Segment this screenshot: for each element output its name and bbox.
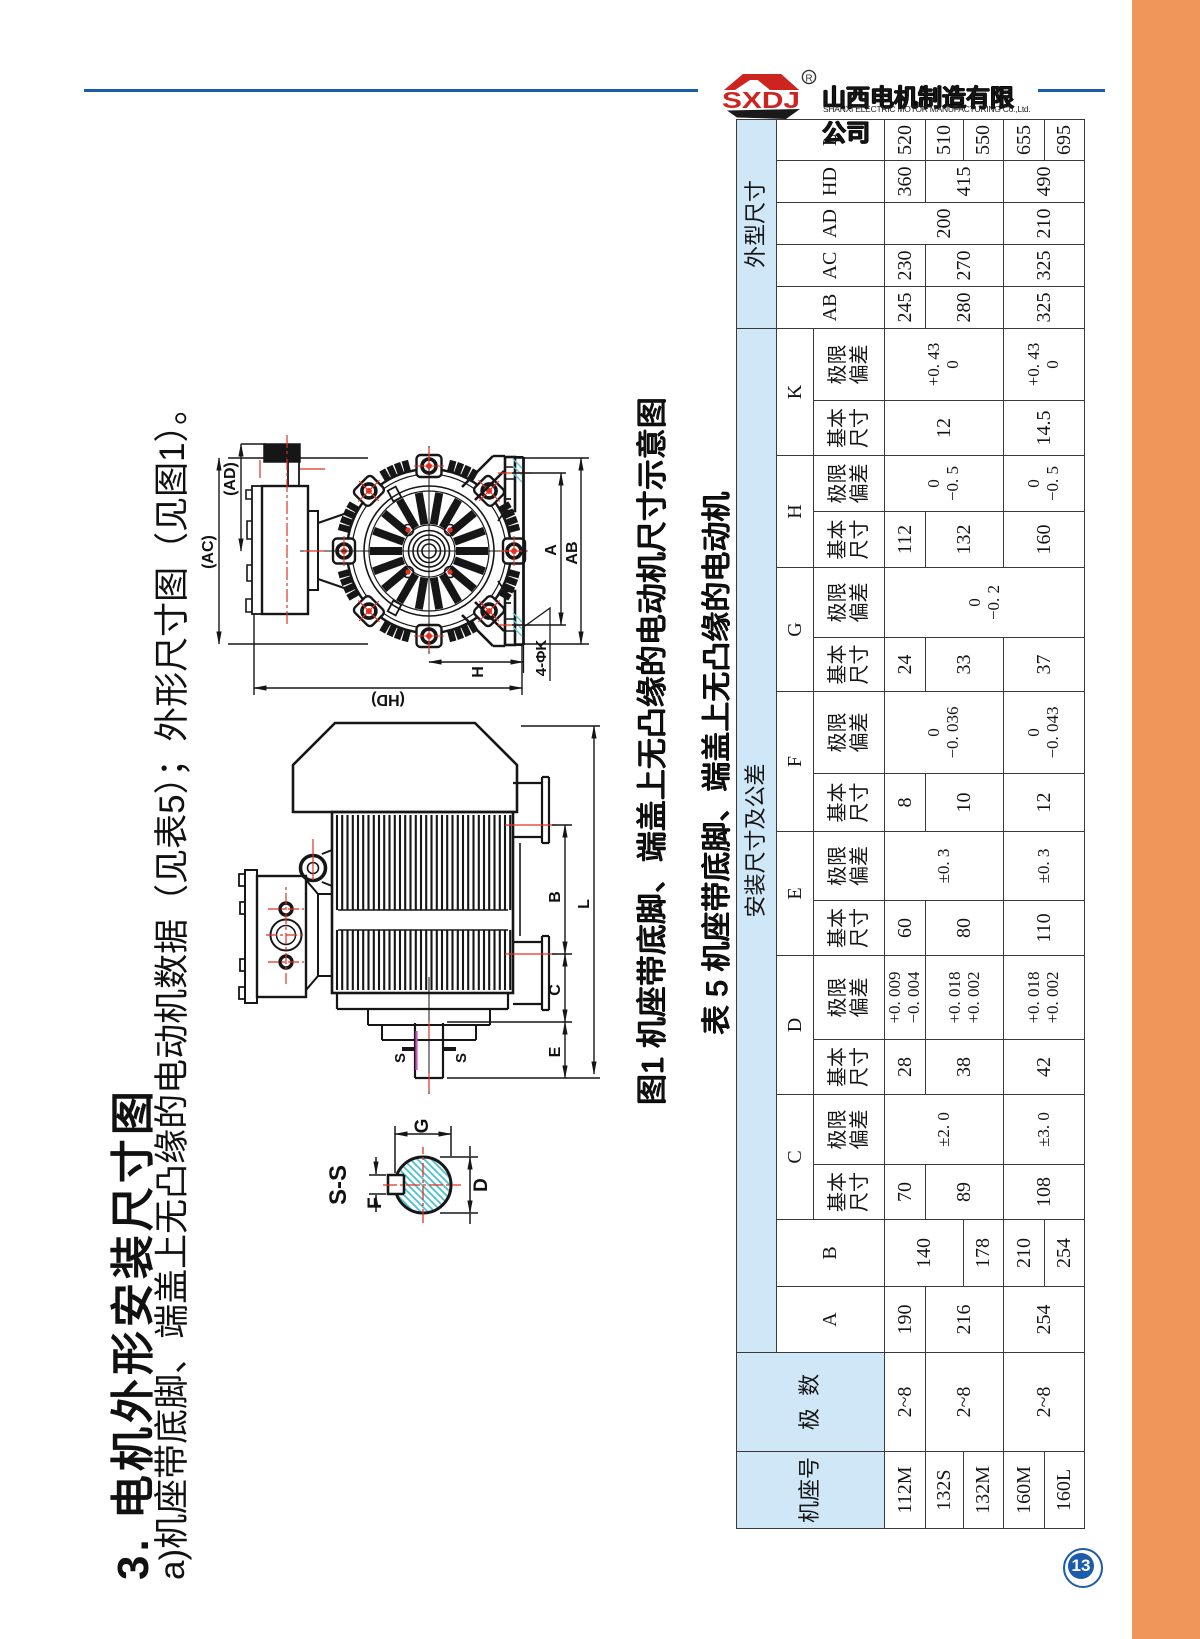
svg-text:4-ΦK: 4-ΦK bbox=[533, 640, 550, 677]
svg-text:A: A bbox=[543, 544, 560, 556]
svg-text:F: F bbox=[365, 1197, 386, 1209]
svg-text:H: H bbox=[470, 666, 487, 678]
svg-text:S: S bbox=[392, 1053, 409, 1063]
svg-text:AB: AB bbox=[564, 541, 581, 564]
svg-text:(HD): (HD) bbox=[371, 691, 405, 708]
svg-text:S-S: S-S bbox=[325, 1165, 352, 1205]
svg-text:(AD): (AD) bbox=[222, 462, 239, 496]
svg-text:B: B bbox=[547, 891, 564, 903]
svg-text:C: C bbox=[547, 984, 564, 996]
svg-text:S: S bbox=[453, 1053, 470, 1063]
svg-text:(AC): (AC) bbox=[200, 535, 217, 569]
svg-text:L: L bbox=[576, 899, 593, 909]
svg-text:G: G bbox=[412, 1119, 433, 1134]
svg-text:E: E bbox=[547, 1046, 564, 1057]
svg-text:D: D bbox=[471, 1178, 492, 1192]
